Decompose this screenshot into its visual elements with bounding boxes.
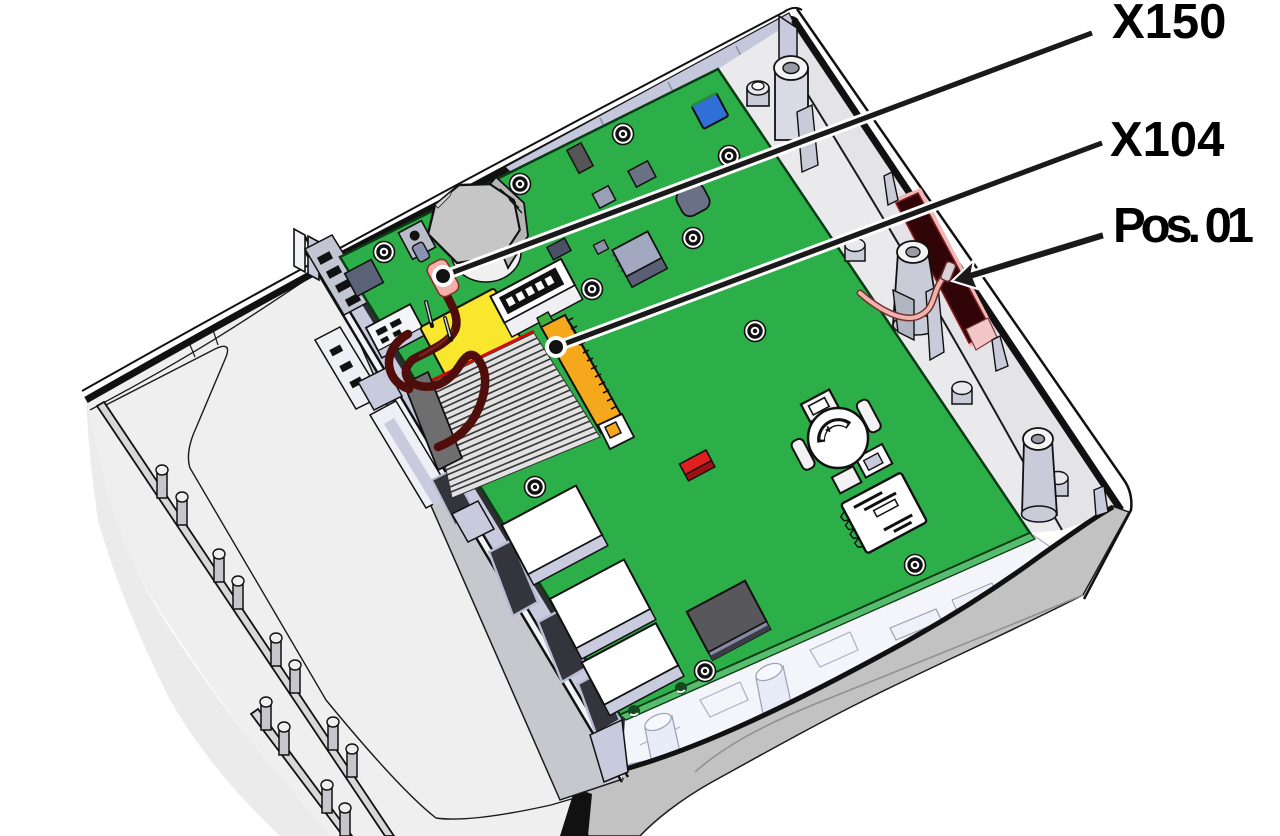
svg-text:X150: X150	[1112, 0, 1226, 49]
svg-text:X104: X104	[1110, 113, 1224, 167]
svg-text:Pos. 01: Pos. 01	[1113, 199, 1254, 253]
